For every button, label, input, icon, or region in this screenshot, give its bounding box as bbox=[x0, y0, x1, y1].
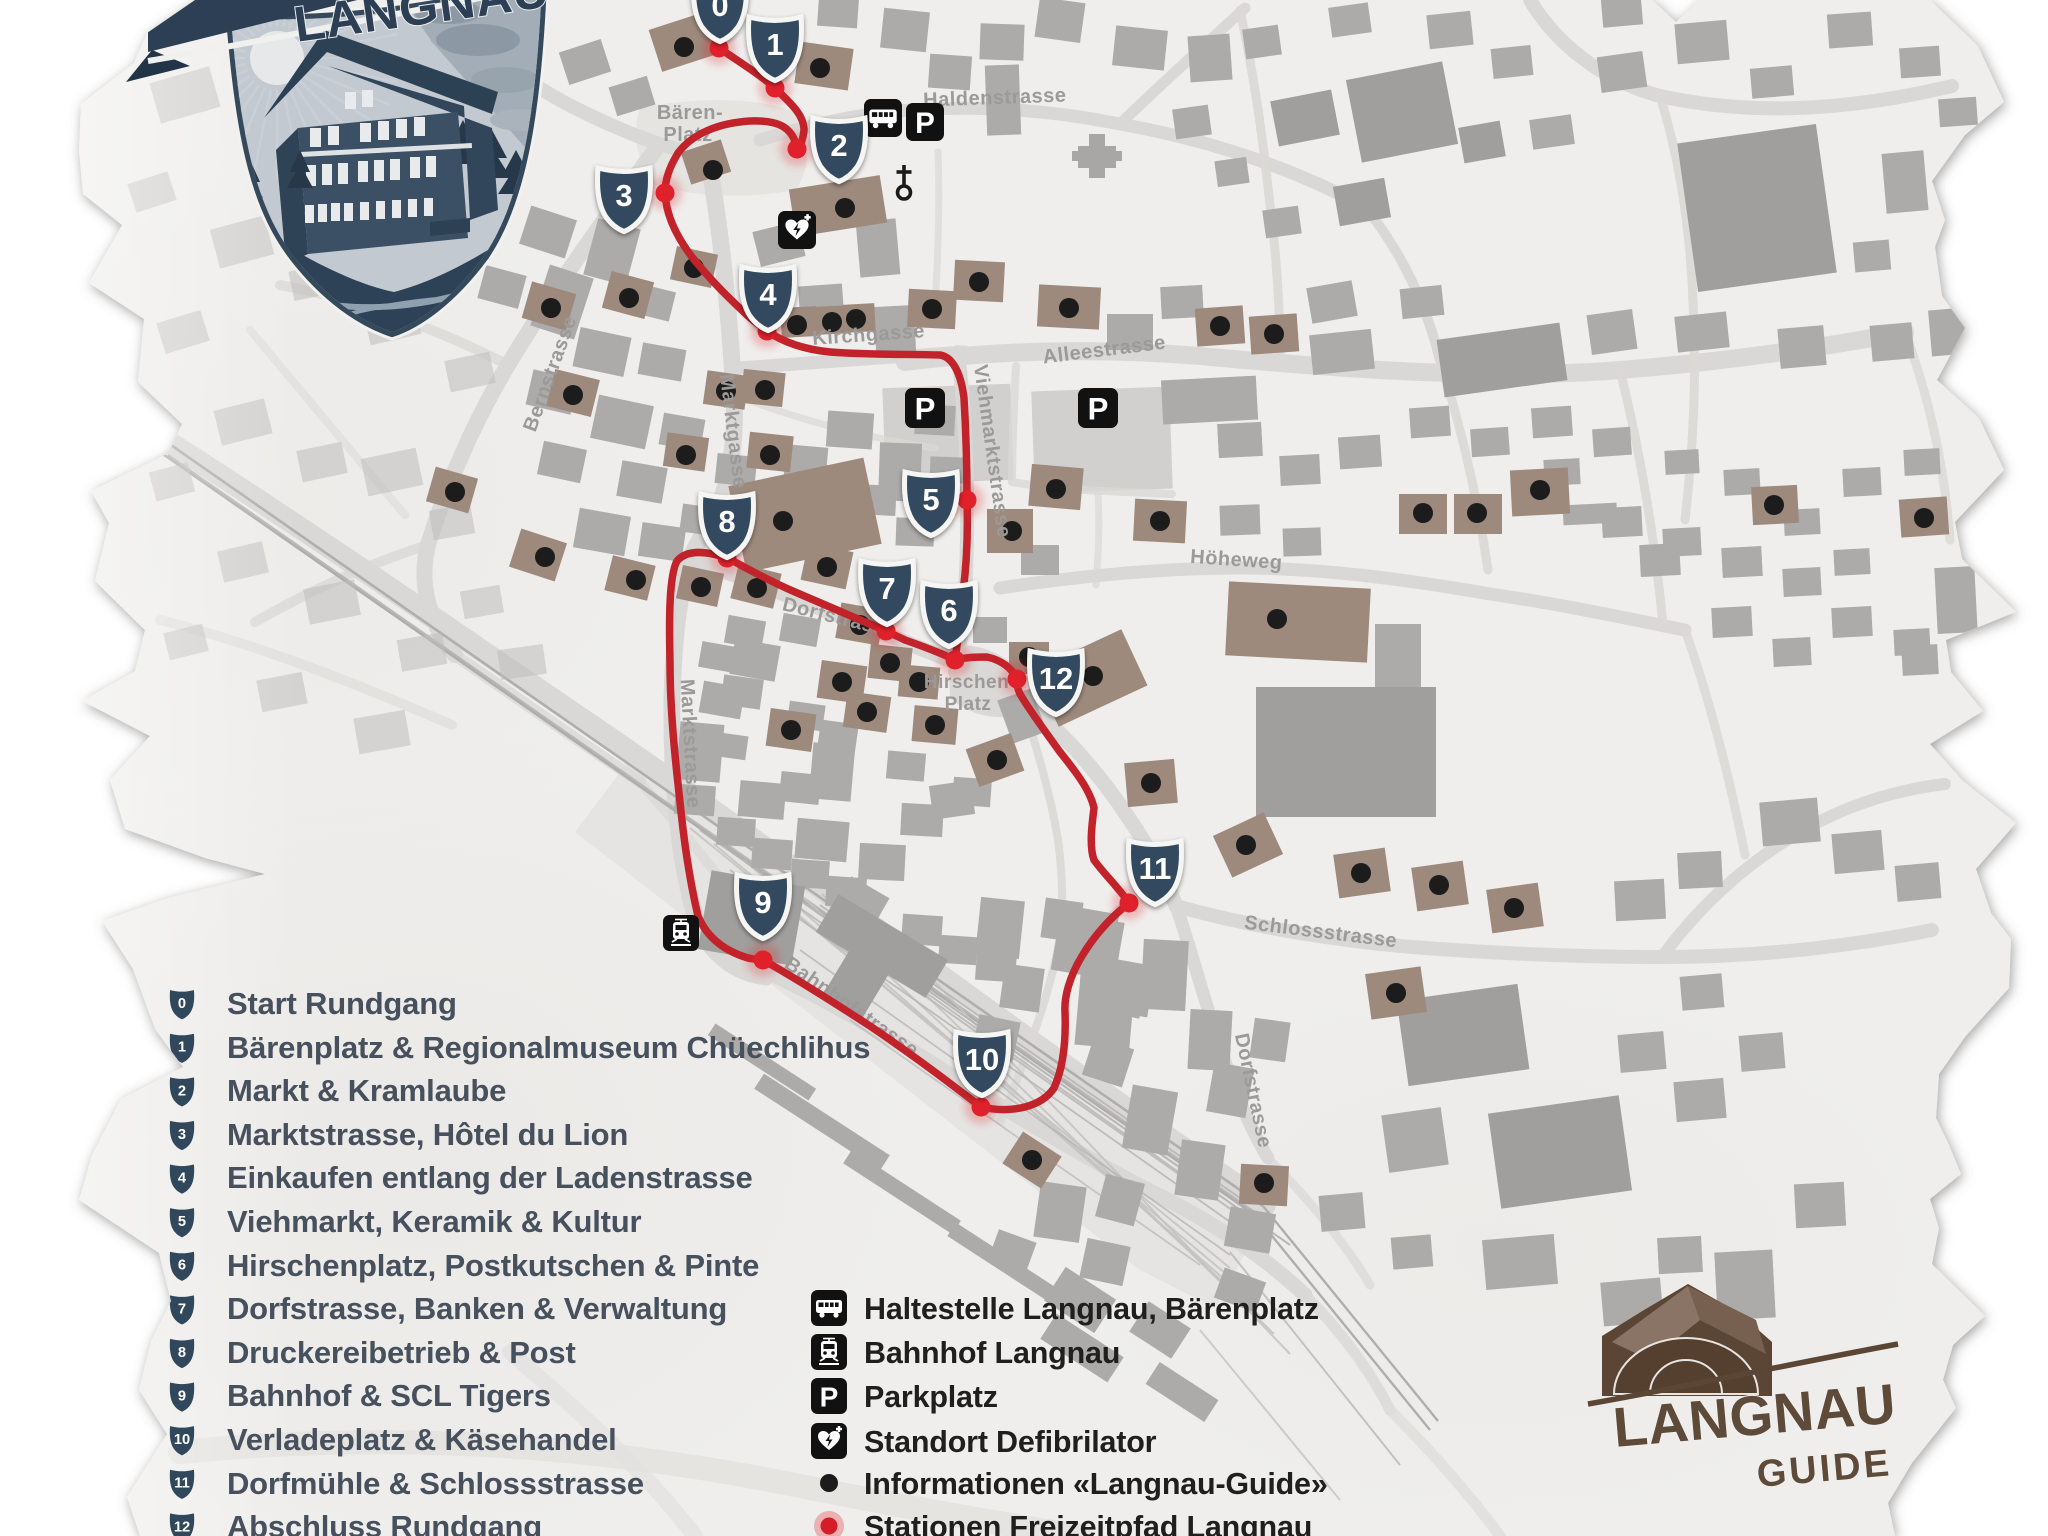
svg-text:Bärenplatz & Regionalmuseum Ch: Bärenplatz & Regionalmuseum Chüechlihus bbox=[227, 1030, 870, 1065]
svg-text:5: 5 bbox=[922, 482, 939, 517]
svg-text:Verladeplatz & Käsehandel: Verladeplatz & Käsehandel bbox=[227, 1422, 617, 1457]
svg-text:1: 1 bbox=[178, 1040, 186, 1056]
svg-text:Druckereibetrieb & Post: Druckereibetrieb & Post bbox=[227, 1335, 576, 1370]
svg-text:P: P bbox=[1088, 392, 1109, 427]
svg-text:Platz: Platz bbox=[945, 694, 992, 715]
svg-text:12: 12 bbox=[1039, 661, 1073, 696]
svg-text:4: 4 bbox=[178, 1170, 187, 1186]
svg-text:Dorfmühle & Schlossstrasse: Dorfmühle & Schlossstrasse bbox=[227, 1466, 644, 1501]
svg-text:6: 6 bbox=[940, 593, 957, 628]
svg-text:0: 0 bbox=[711, 0, 728, 23]
svg-text:Dorfstrasse, Banken & Verwaltu: Dorfstrasse, Banken & Verwaltung bbox=[227, 1291, 727, 1326]
svg-text:Standort Defibrilator: Standort Defibrilator bbox=[864, 1425, 1157, 1459]
svg-text:5: 5 bbox=[178, 1214, 186, 1230]
svg-text:Start Rundgang: Start Rundgang bbox=[227, 986, 457, 1021]
svg-text:P: P bbox=[915, 392, 936, 427]
svg-text:Stationen Freizeitpfad Langnau: Stationen Freizeitpfad Langnau bbox=[864, 1510, 1312, 1536]
svg-text:1: 1 bbox=[766, 27, 783, 62]
svg-text:Hirschenplatz, Postkutschen &: Hirschenplatz, Postkutschen & Pinte bbox=[227, 1248, 759, 1283]
svg-text:7: 7 bbox=[878, 571, 895, 606]
svg-text:9: 9 bbox=[754, 885, 771, 920]
svg-text:11: 11 bbox=[1139, 851, 1172, 886]
svg-text:Einkaufen entlang der Ladenstr: Einkaufen entlang der Ladenstrasse bbox=[227, 1160, 753, 1195]
svg-text:3: 3 bbox=[178, 1127, 186, 1143]
svg-text:P: P bbox=[820, 1382, 839, 1413]
svg-text:9: 9 bbox=[178, 1388, 186, 1404]
svg-text:Parkplatz: Parkplatz bbox=[864, 1380, 998, 1414]
svg-text:Bahnhof & SCL Tigers: Bahnhof & SCL Tigers bbox=[227, 1378, 551, 1413]
svg-text:Informationen «Langnau-Guide»: Informationen «Langnau-Guide» bbox=[864, 1467, 1328, 1501]
svg-text:10: 10 bbox=[965, 1042, 999, 1077]
svg-text:11: 11 bbox=[174, 1476, 190, 1492]
svg-text:8: 8 bbox=[718, 504, 735, 539]
svg-text:8: 8 bbox=[178, 1345, 186, 1361]
svg-text:6: 6 bbox=[178, 1258, 186, 1274]
svg-text:10: 10 bbox=[174, 1432, 190, 1448]
svg-text:12: 12 bbox=[174, 1519, 190, 1535]
svg-text:Abschluss Rundgang: Abschluss Rundgang bbox=[227, 1509, 542, 1536]
svg-text:2: 2 bbox=[830, 128, 847, 163]
svg-text:Haltestelle Langnau, Bärenplat: Haltestelle Langnau, Bärenplatz bbox=[864, 1292, 1319, 1326]
svg-text:Viehmarkt, Keramik & Kultur: Viehmarkt, Keramik & Kultur bbox=[227, 1204, 642, 1239]
svg-text:2: 2 bbox=[178, 1083, 186, 1099]
svg-text:0: 0 bbox=[178, 996, 186, 1012]
svg-text:3: 3 bbox=[615, 178, 632, 213]
svg-text:Markt & Kramlaube: Markt & Kramlaube bbox=[227, 1073, 506, 1108]
svg-text:Bären-: Bären- bbox=[657, 102, 723, 124]
svg-text:Bahnhof Langnau: Bahnhof Langnau bbox=[864, 1336, 1120, 1370]
svg-text:P: P bbox=[915, 107, 935, 140]
svg-text:7: 7 bbox=[178, 1301, 186, 1317]
svg-text:Marktstrasse, Hôtel du Lion: Marktstrasse, Hôtel du Lion bbox=[227, 1117, 628, 1152]
svg-text:4: 4 bbox=[759, 277, 777, 312]
